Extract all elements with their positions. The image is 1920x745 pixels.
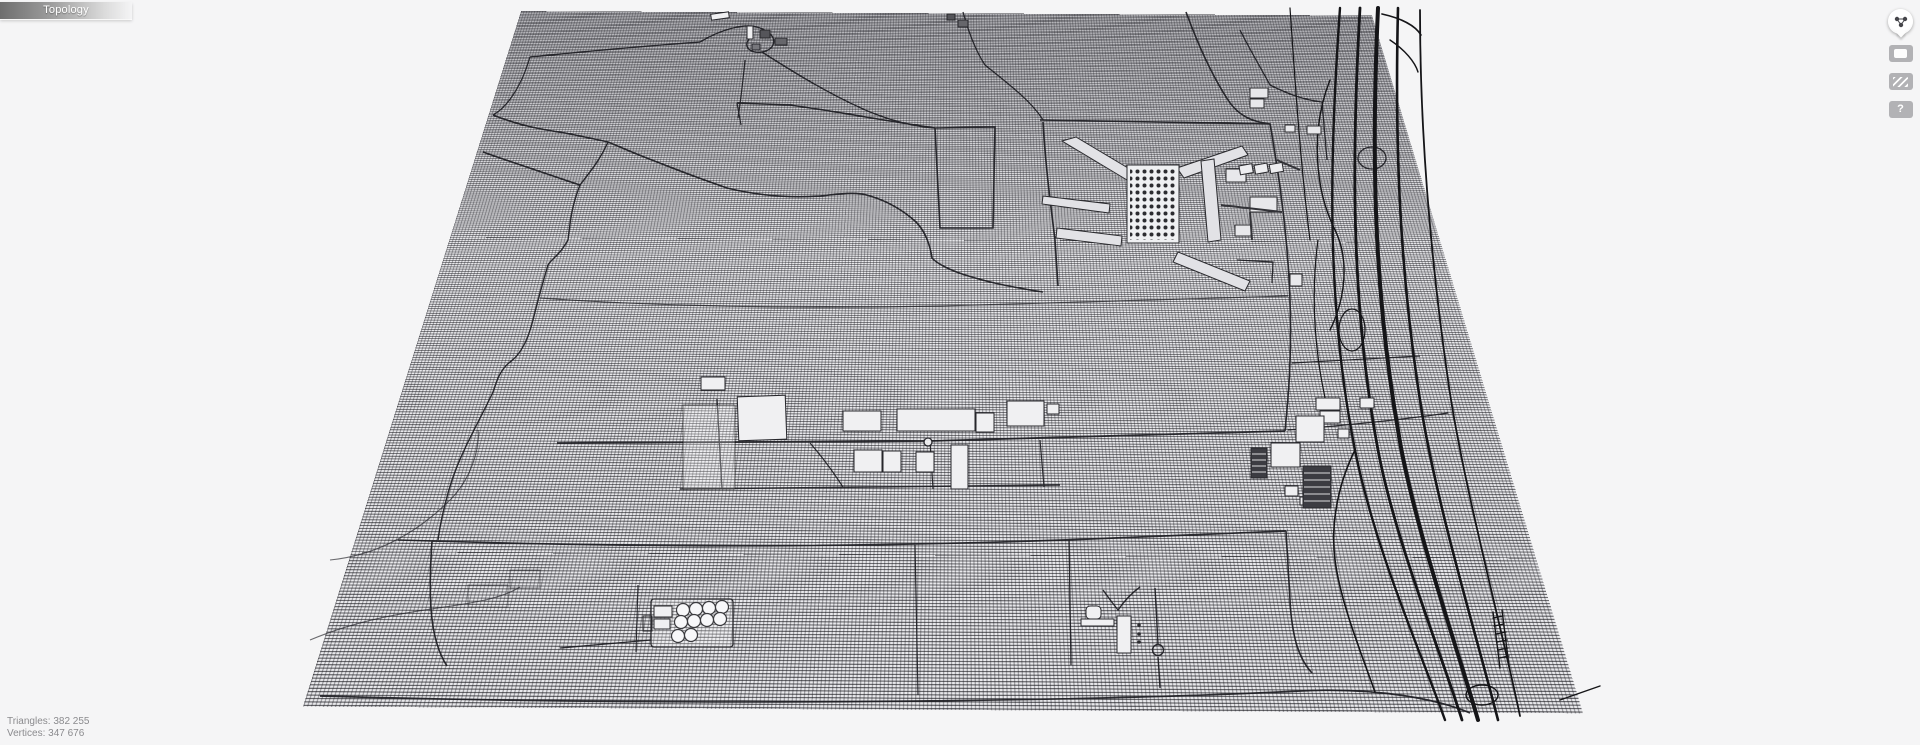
flat-surface-icon — [1894, 49, 1907, 58]
inspector-toolbar: ? — [1888, 9, 1913, 118]
triangles-stat: Triangles: 382 255 — [7, 716, 89, 728]
terrain-wireframe-mesh — [303, 11, 1583, 713]
wireframe-stripes-icon — [1893, 77, 1908, 87]
help-icon: ? — [1897, 104, 1904, 115]
vertices-stat: Vertices: 347 676 — [7, 728, 89, 740]
topology-inspector-button[interactable] — [1888, 9, 1913, 34]
vertices-label: Vertices: — [7, 728, 45, 739]
triangles-value: 382 255 — [53, 716, 89, 727]
surface-view-button[interactable] — [1889, 45, 1913, 62]
vertices-value: 347 676 — [48, 728, 84, 739]
help-button[interactable]: ? — [1889, 101, 1913, 118]
triangles-label: Triangles: — [7, 716, 51, 727]
model-viewport[interactable]: Topology Triangles: 382 255 Vertices: 34… — [0, 0, 1920, 745]
wireframe-view-button[interactable] — [1889, 73, 1913, 90]
vertex-graph-icon — [1894, 16, 1908, 28]
inspector-mode-badge[interactable]: Topology — [0, 2, 132, 19]
mesh-stats: Triangles: 382 255 Vertices: 347 676 — [7, 716, 89, 740]
